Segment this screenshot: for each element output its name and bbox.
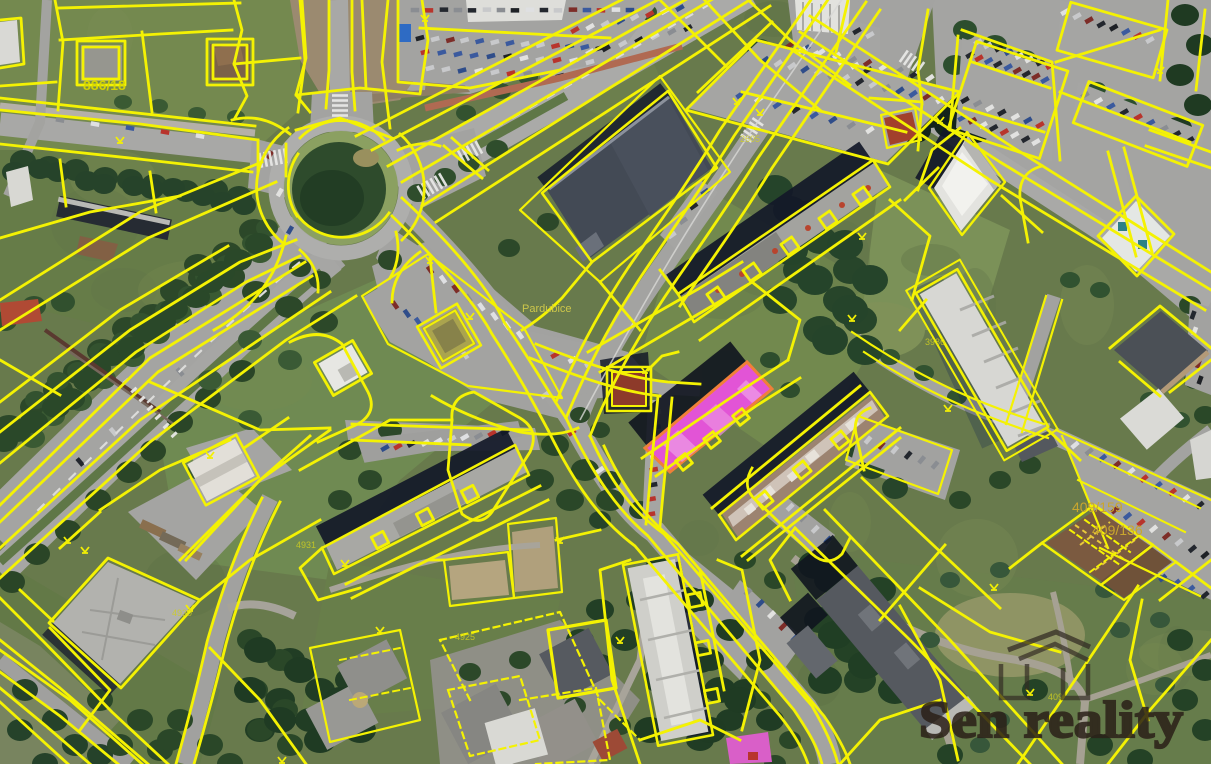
svg-text:409/159: 409/159 [1072, 499, 1123, 515]
svg-text:4930: 4930 [172, 608, 192, 618]
svg-text:2605: 2605 [740, 134, 760, 144]
svg-text:4931: 4931 [296, 540, 316, 550]
svg-text:Sen reality: Sen reality [919, 692, 1183, 749]
svg-text:Pardubice: Pardubice [522, 303, 572, 315]
svg-text:3986: 3986 [925, 337, 945, 347]
svg-text:4925: 4925 [455, 632, 475, 642]
svg-text:886/18: 886/18 [83, 77, 126, 93]
svg-text:409/136: 409/136 [1092, 522, 1143, 538]
